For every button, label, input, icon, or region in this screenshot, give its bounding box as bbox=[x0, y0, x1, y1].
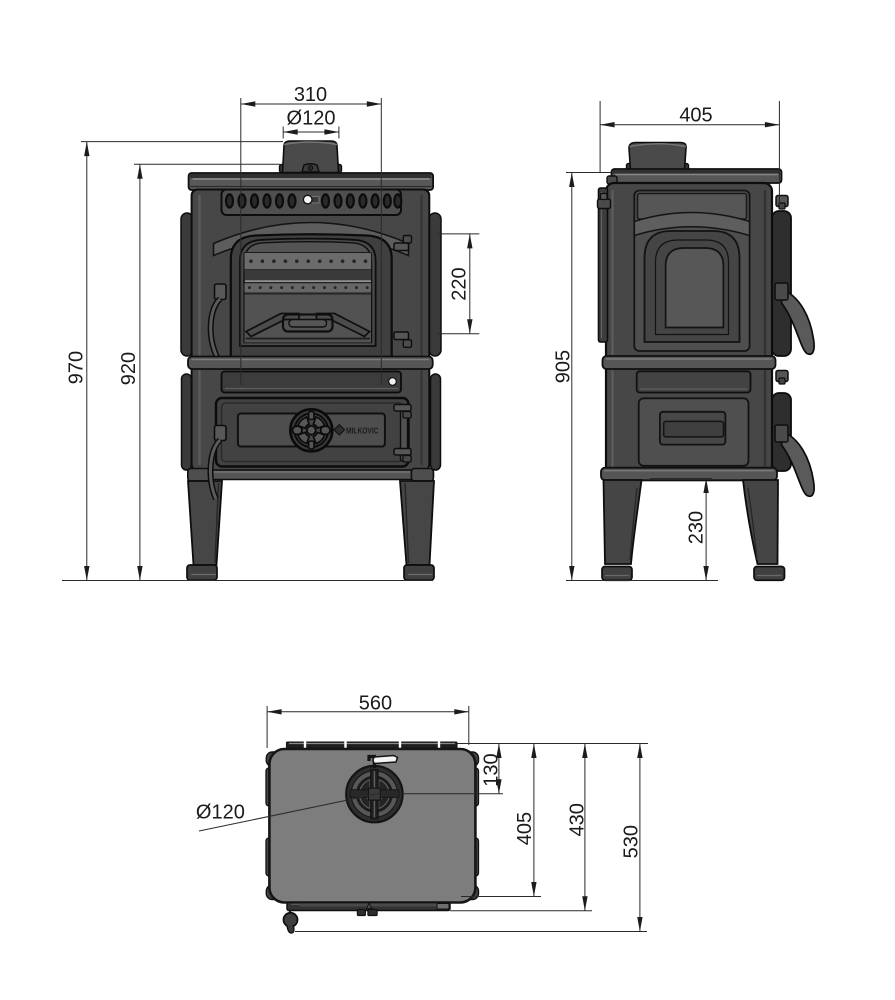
svg-text:220: 220 bbox=[449, 267, 471, 300]
svg-text:230: 230 bbox=[686, 511, 708, 544]
svg-text:Ø120: Ø120 bbox=[196, 802, 245, 824]
svg-text:920: 920 bbox=[118, 352, 140, 385]
svg-text:MILKOVIC: MILKOVIC bbox=[346, 427, 379, 436]
svg-text:905: 905 bbox=[553, 350, 575, 383]
svg-text:970: 970 bbox=[66, 351, 88, 384]
svg-text:405: 405 bbox=[679, 104, 712, 126]
svg-text:430: 430 bbox=[567, 803, 589, 836]
svg-text:530: 530 bbox=[620, 825, 642, 858]
svg-text:130: 130 bbox=[480, 753, 502, 786]
svg-text:310: 310 bbox=[294, 84, 327, 106]
svg-text:560: 560 bbox=[359, 692, 392, 714]
svg-text:Ø120: Ø120 bbox=[287, 108, 336, 130]
svg-text:405: 405 bbox=[514, 812, 536, 845]
